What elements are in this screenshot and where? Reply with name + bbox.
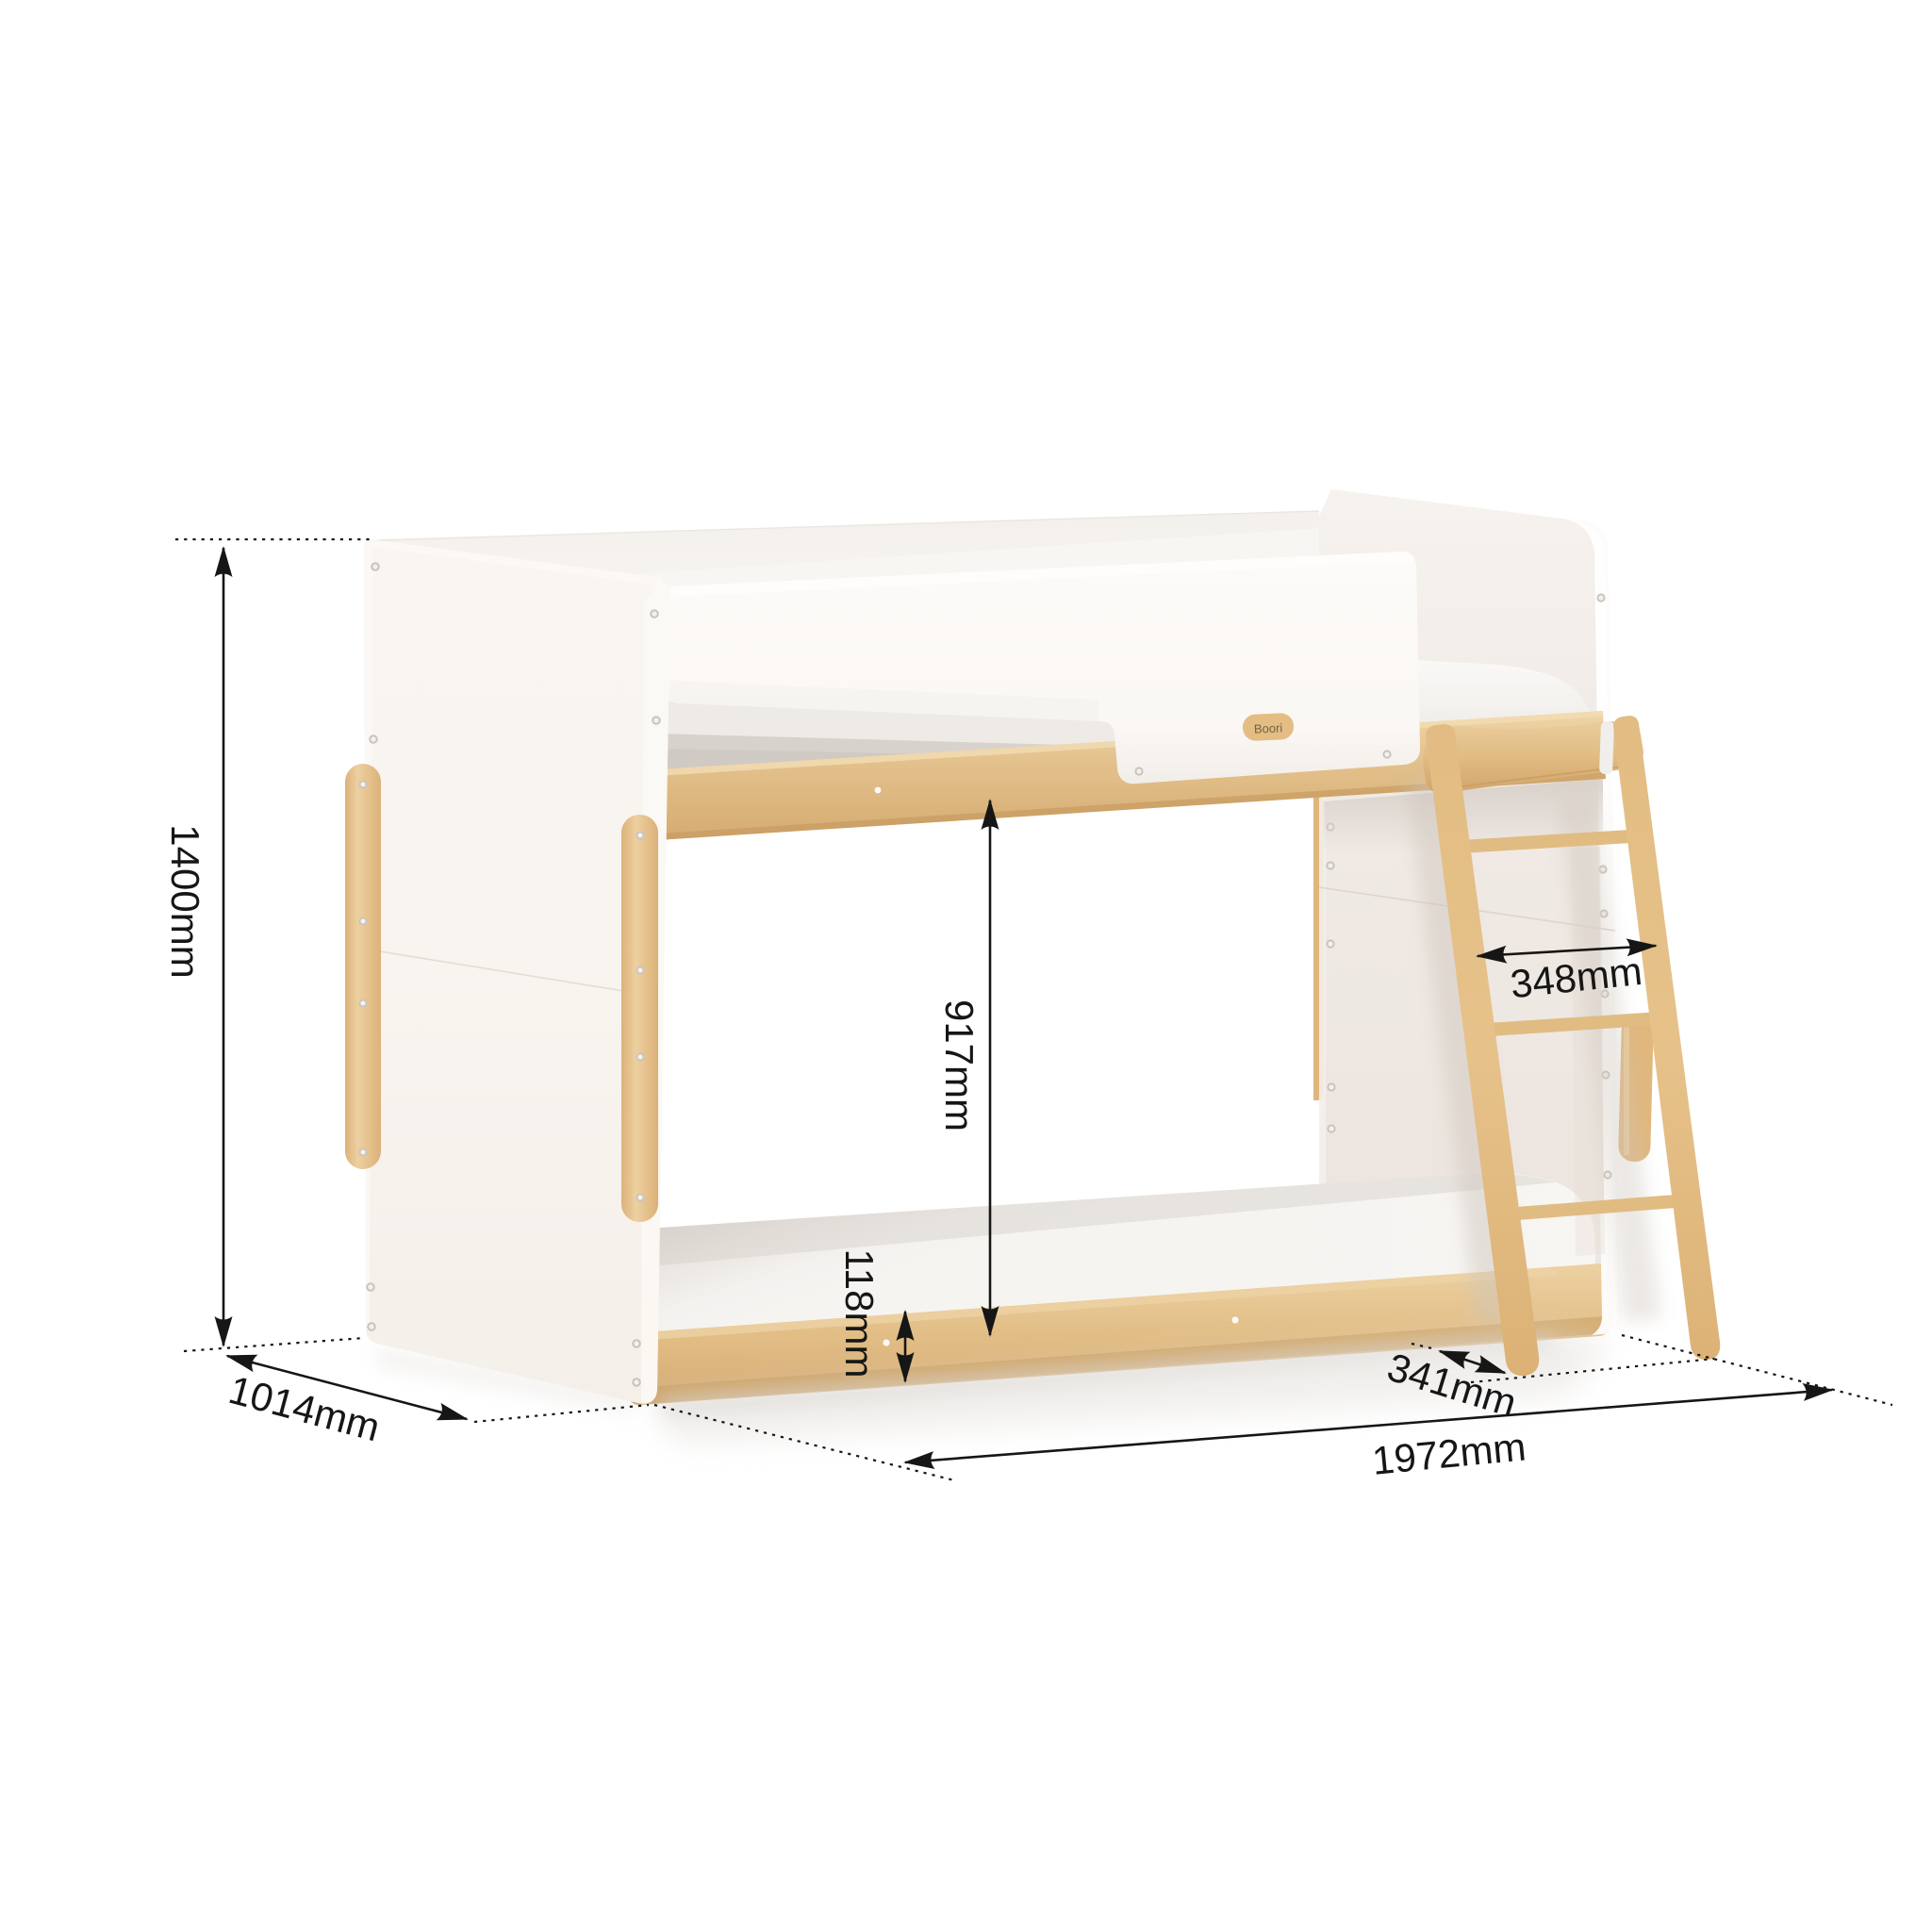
svg-text:917mm: 917mm bbox=[937, 999, 982, 1131]
svg-text:Boori: Boori bbox=[1254, 720, 1283, 735]
svg-text:118mm: 118mm bbox=[837, 1249, 882, 1379]
svg-text:1400mm: 1400mm bbox=[163, 824, 207, 978]
